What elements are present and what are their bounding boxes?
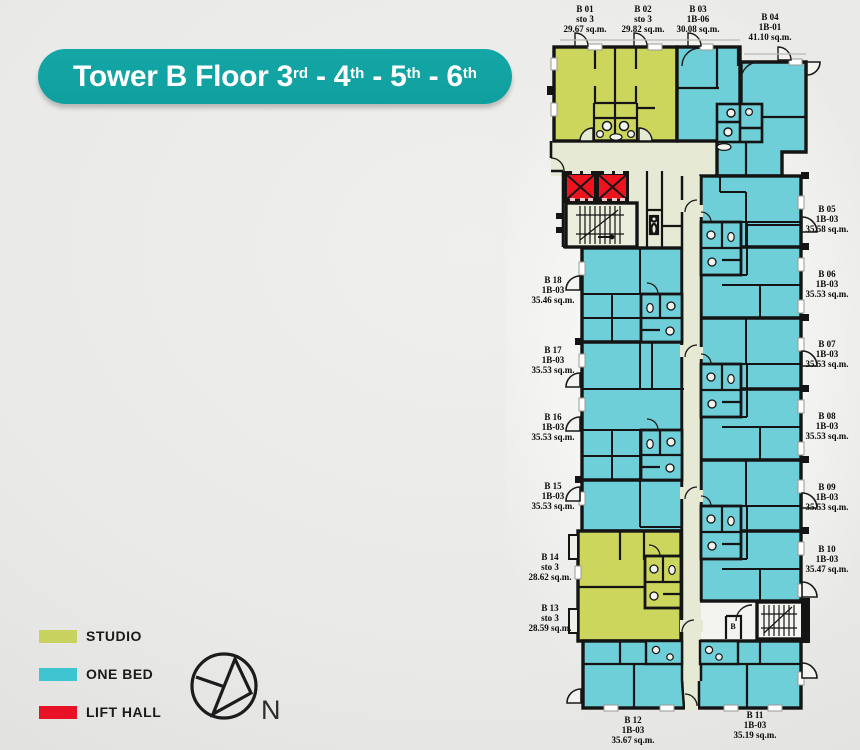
svg-text:sto 3: sto 3: [576, 14, 594, 24]
svg-text:29.82 sq.m.: 29.82 sq.m.: [621, 24, 664, 34]
svg-text:28.59 sq.m.: 28.59 sq.m.: [528, 623, 571, 633]
svg-text:B 18: B 18: [544, 275, 562, 285]
svg-text:1B-03: 1B-03: [816, 421, 839, 431]
svg-text:B 13: B 13: [541, 603, 559, 613]
svg-text:B 10: B 10: [818, 544, 836, 554]
svg-text:1B-03: 1B-03: [816, 492, 839, 502]
svg-text:30.08 sq.m.: 30.08 sq.m.: [676, 24, 719, 34]
svg-text:35.47 sq.m.: 35.47 sq.m.: [805, 564, 848, 574]
svg-text:B 12: B 12: [624, 715, 642, 725]
svg-text:35.58 sq.m.: 35.58 sq.m.: [805, 224, 848, 234]
svg-text:B 05: B 05: [818, 204, 836, 214]
svg-text:B 17: B 17: [544, 345, 562, 355]
svg-text:1B-03: 1B-03: [744, 720, 767, 730]
svg-text:B 14: B 14: [541, 552, 559, 562]
svg-text:B 01: B 01: [576, 4, 594, 14]
svg-text:1B-03: 1B-03: [816, 279, 839, 289]
svg-text:35.53 sq.m.: 35.53 sq.m.: [805, 502, 848, 512]
svg-text:sto 3: sto 3: [634, 14, 652, 24]
svg-text:B: B: [730, 622, 736, 631]
svg-text:1B-03: 1B-03: [542, 422, 565, 432]
svg-text:35.53 sq.m.: 35.53 sq.m.: [805, 431, 848, 441]
svg-text:N: N: [261, 695, 281, 725]
svg-text:sto 3: sto 3: [541, 613, 559, 623]
svg-text:1B-03: 1B-03: [622, 725, 645, 735]
svg-text:B 09: B 09: [818, 482, 836, 492]
svg-text:28.62 sq.m.: 28.62 sq.m.: [528, 572, 571, 582]
svg-text:1B-03: 1B-03: [542, 285, 565, 295]
svg-text:41.10 sq.m.: 41.10 sq.m.: [748, 32, 791, 42]
svg-text:B 07: B 07: [818, 339, 836, 349]
svg-text:sto 3: sto 3: [541, 562, 559, 572]
svg-text:1B-03: 1B-03: [816, 214, 839, 224]
svg-text:B 06: B 06: [818, 269, 836, 279]
svg-text:35.53 sq.m.: 35.53 sq.m.: [531, 501, 574, 511]
svg-text:B 03: B 03: [689, 4, 707, 14]
svg-text:B 02: B 02: [634, 4, 652, 14]
svg-text:1B-03: 1B-03: [542, 491, 565, 501]
svg-text:1B-06: 1B-06: [687, 14, 710, 24]
svg-text:B 11: B 11: [747, 710, 764, 720]
svg-text:35.53 sq.m.: 35.53 sq.m.: [531, 432, 574, 442]
svg-text:29.67 sq.m.: 29.67 sq.m.: [563, 24, 606, 34]
svg-text:35.19 sq.m.: 35.19 sq.m.: [733, 730, 776, 740]
svg-text:35.53 sq.m.: 35.53 sq.m.: [805, 289, 848, 299]
svg-text:35.53 sq.m.: 35.53 sq.m.: [531, 365, 574, 375]
svg-text:1B-01: 1B-01: [759, 22, 782, 32]
svg-text:B 16: B 16: [544, 412, 562, 422]
svg-text:35.67 sq.m.: 35.67 sq.m.: [611, 735, 654, 745]
svg-text:B 15: B 15: [544, 481, 562, 491]
svg-text:1B-03: 1B-03: [816, 349, 839, 359]
svg-text:35.46 sq.m.: 35.46 sq.m.: [531, 295, 574, 305]
svg-text:B 08: B 08: [818, 411, 836, 421]
svg-text:B 04: B 04: [761, 12, 779, 22]
svg-text:35.53 sq.m.: 35.53 sq.m.: [805, 359, 848, 369]
svg-text:1B-03: 1B-03: [816, 554, 839, 564]
svg-text:1B-03: 1B-03: [542, 355, 565, 365]
